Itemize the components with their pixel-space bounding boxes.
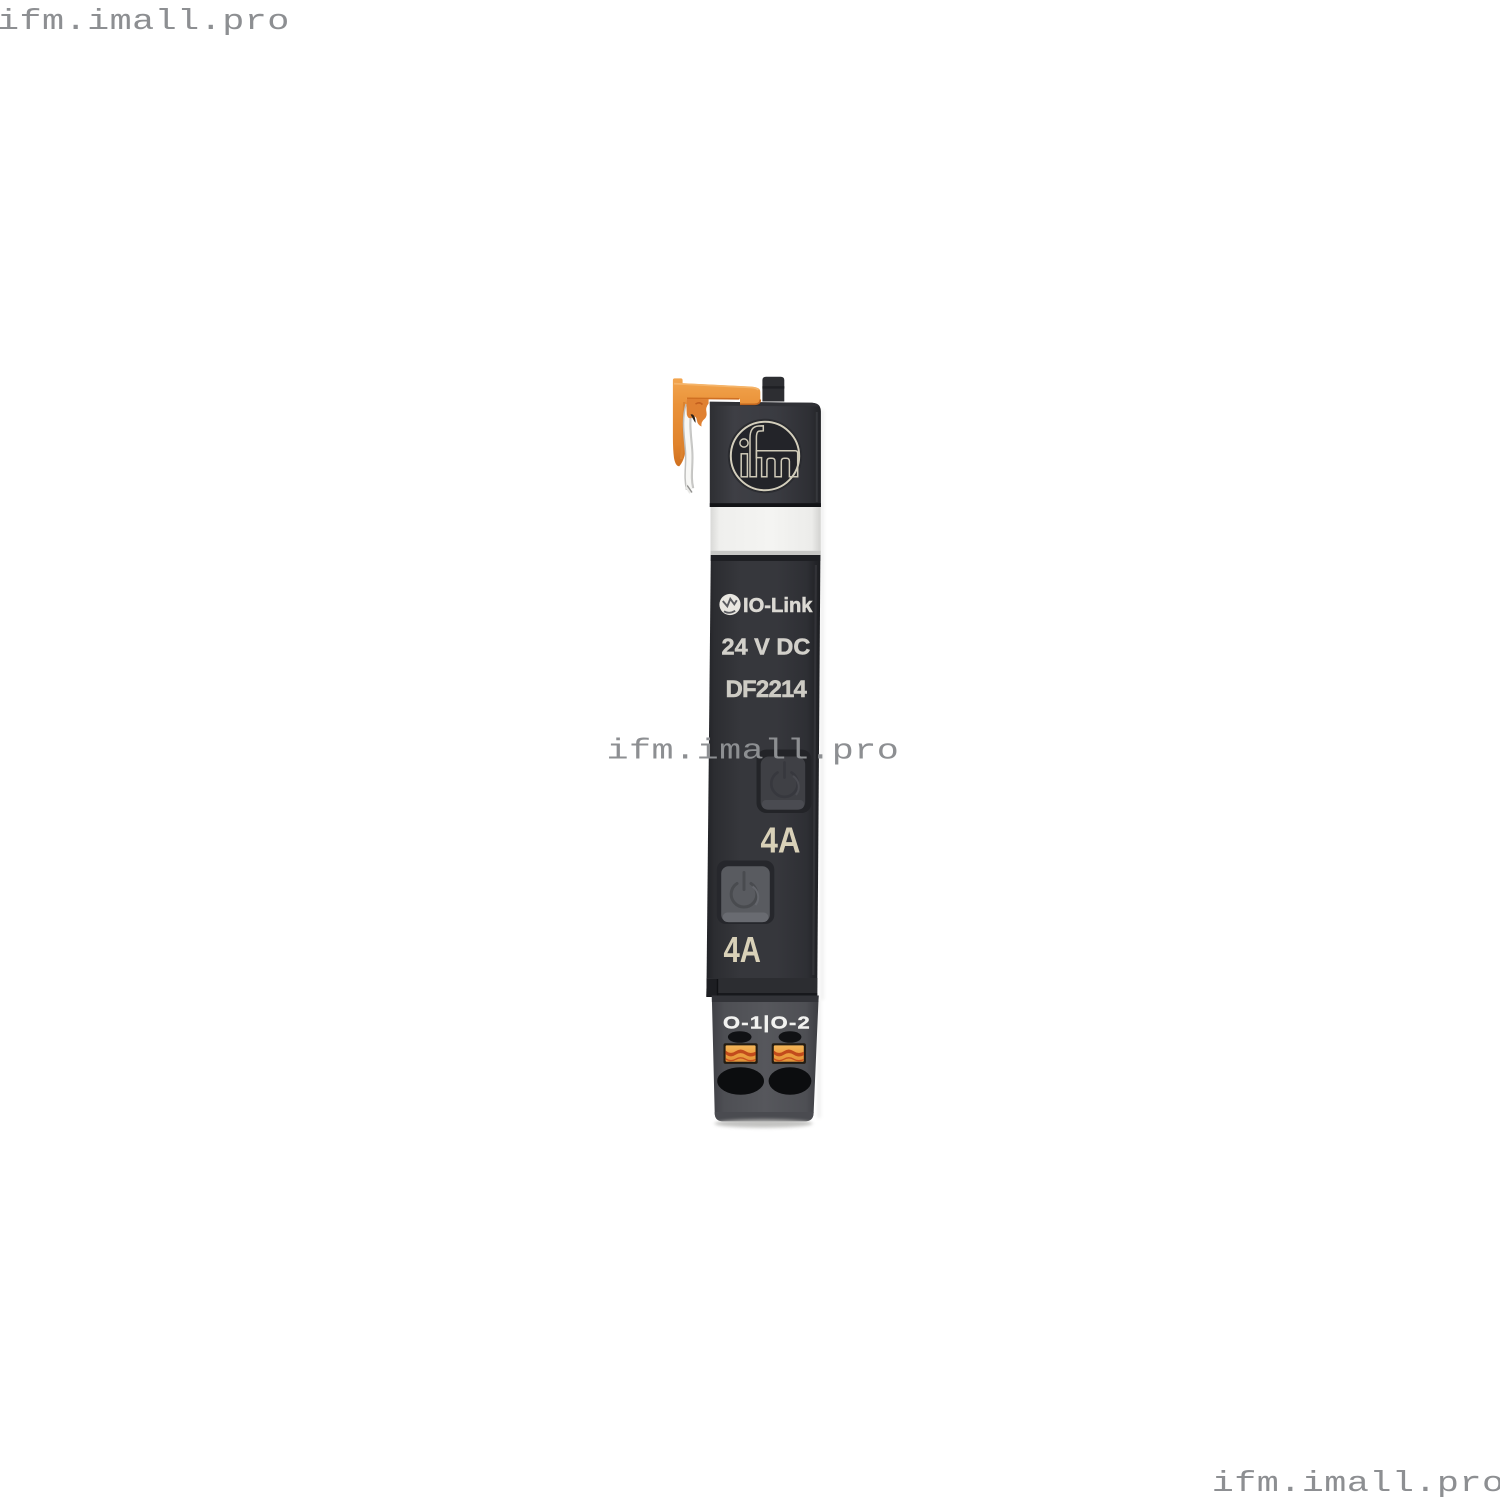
svg-text:4A: 4A — [761, 820, 801, 861]
svg-text:DF2214: DF2214 — [726, 676, 808, 703]
svg-text:O-1|O-2: O-1|O-2 — [723, 1013, 811, 1033]
svg-text:ifm.imall.pro: ifm.imall.pro — [1212, 1468, 1500, 1500]
svg-text:24 V DC: 24 V DC — [722, 634, 811, 660]
svg-text:ifm.imall.pro: ifm.imall.pro — [607, 735, 900, 767]
svg-text:IO-Link: IO-Link — [743, 595, 813, 617]
svg-text:4A: 4A — [724, 929, 762, 970]
svg-text:ifm.imall.pro: ifm.imall.pro — [0, 5, 290, 37]
